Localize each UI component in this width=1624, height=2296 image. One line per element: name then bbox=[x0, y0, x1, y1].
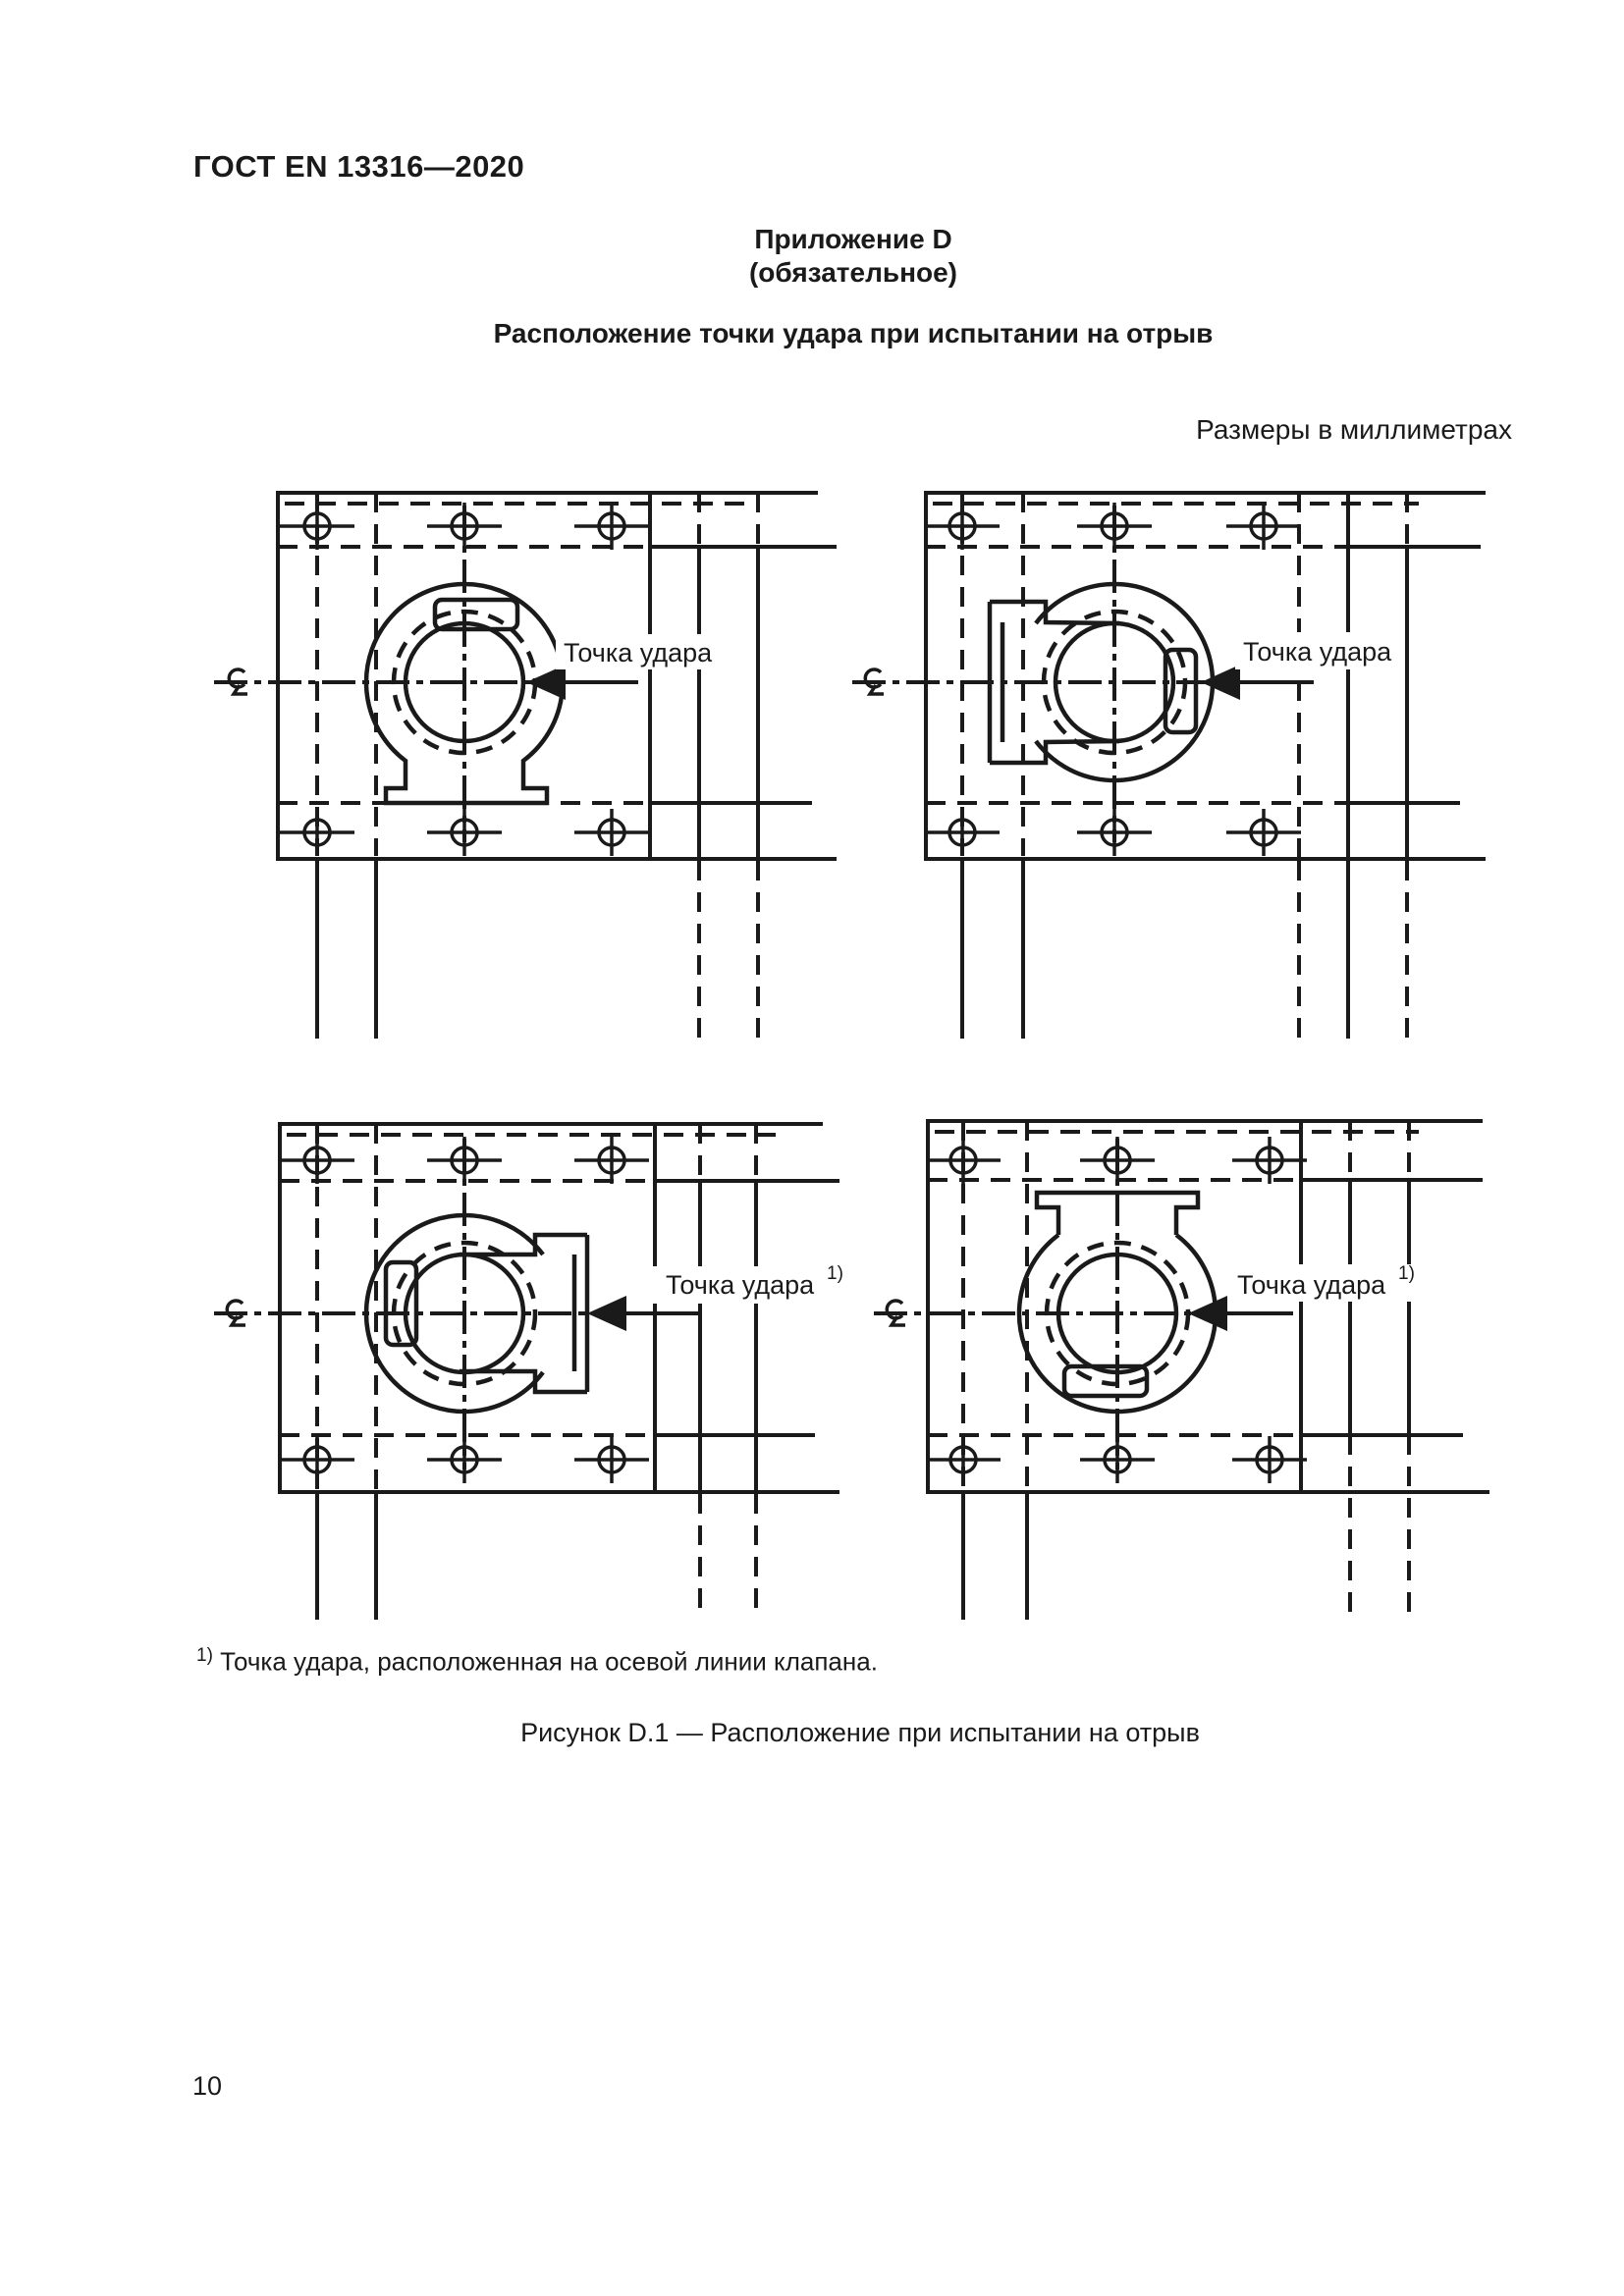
drawing-top-left: Точка удара bbox=[214, 493, 837, 1039]
page-number: 10 bbox=[192, 2071, 222, 2102]
drawing-bottom-right: Точка удара 1) bbox=[874, 1121, 1489, 1620]
impact-point-footnote-ref: 1) bbox=[827, 1263, 843, 1284]
impact-point-label: Точка удара bbox=[1237, 1270, 1386, 1300]
drawing-bottom-left: Точка удара 1) bbox=[214, 1124, 844, 1620]
footnote-marker: 1) bbox=[196, 1645, 213, 1666]
impact-arrow bbox=[1201, 665, 1240, 700]
figure-caption: Рисунок D.1 — Расположение при испытании… bbox=[194, 1718, 1526, 1748]
drawing-top-right: Точка удара bbox=[852, 493, 1486, 1039]
footnote-text: Точка удара, расположенная на осевой лин… bbox=[220, 1647, 878, 1677]
impact-point-footnote-ref: 1) bbox=[1398, 1263, 1415, 1284]
impact-arrow bbox=[1188, 1296, 1227, 1331]
impact-arrow bbox=[587, 1296, 626, 1331]
valve-bonnet bbox=[386, 1262, 416, 1345]
document-page: { "page": { "header": "ГОСТ EN 13316—202… bbox=[0, 0, 1624, 2296]
footnote: 1) Точка удара, расположенная на осевой … bbox=[196, 1645, 878, 1678]
impact-point-label: Точка удара bbox=[666, 1270, 815, 1300]
impact-point-label: Точка удара bbox=[1243, 637, 1392, 667]
valve-flange bbox=[460, 1235, 587, 1255]
figure-d1-drawings: Точка удара bbox=[0, 0, 1624, 2296]
impact-point-label: Точка удара bbox=[564, 638, 713, 667]
